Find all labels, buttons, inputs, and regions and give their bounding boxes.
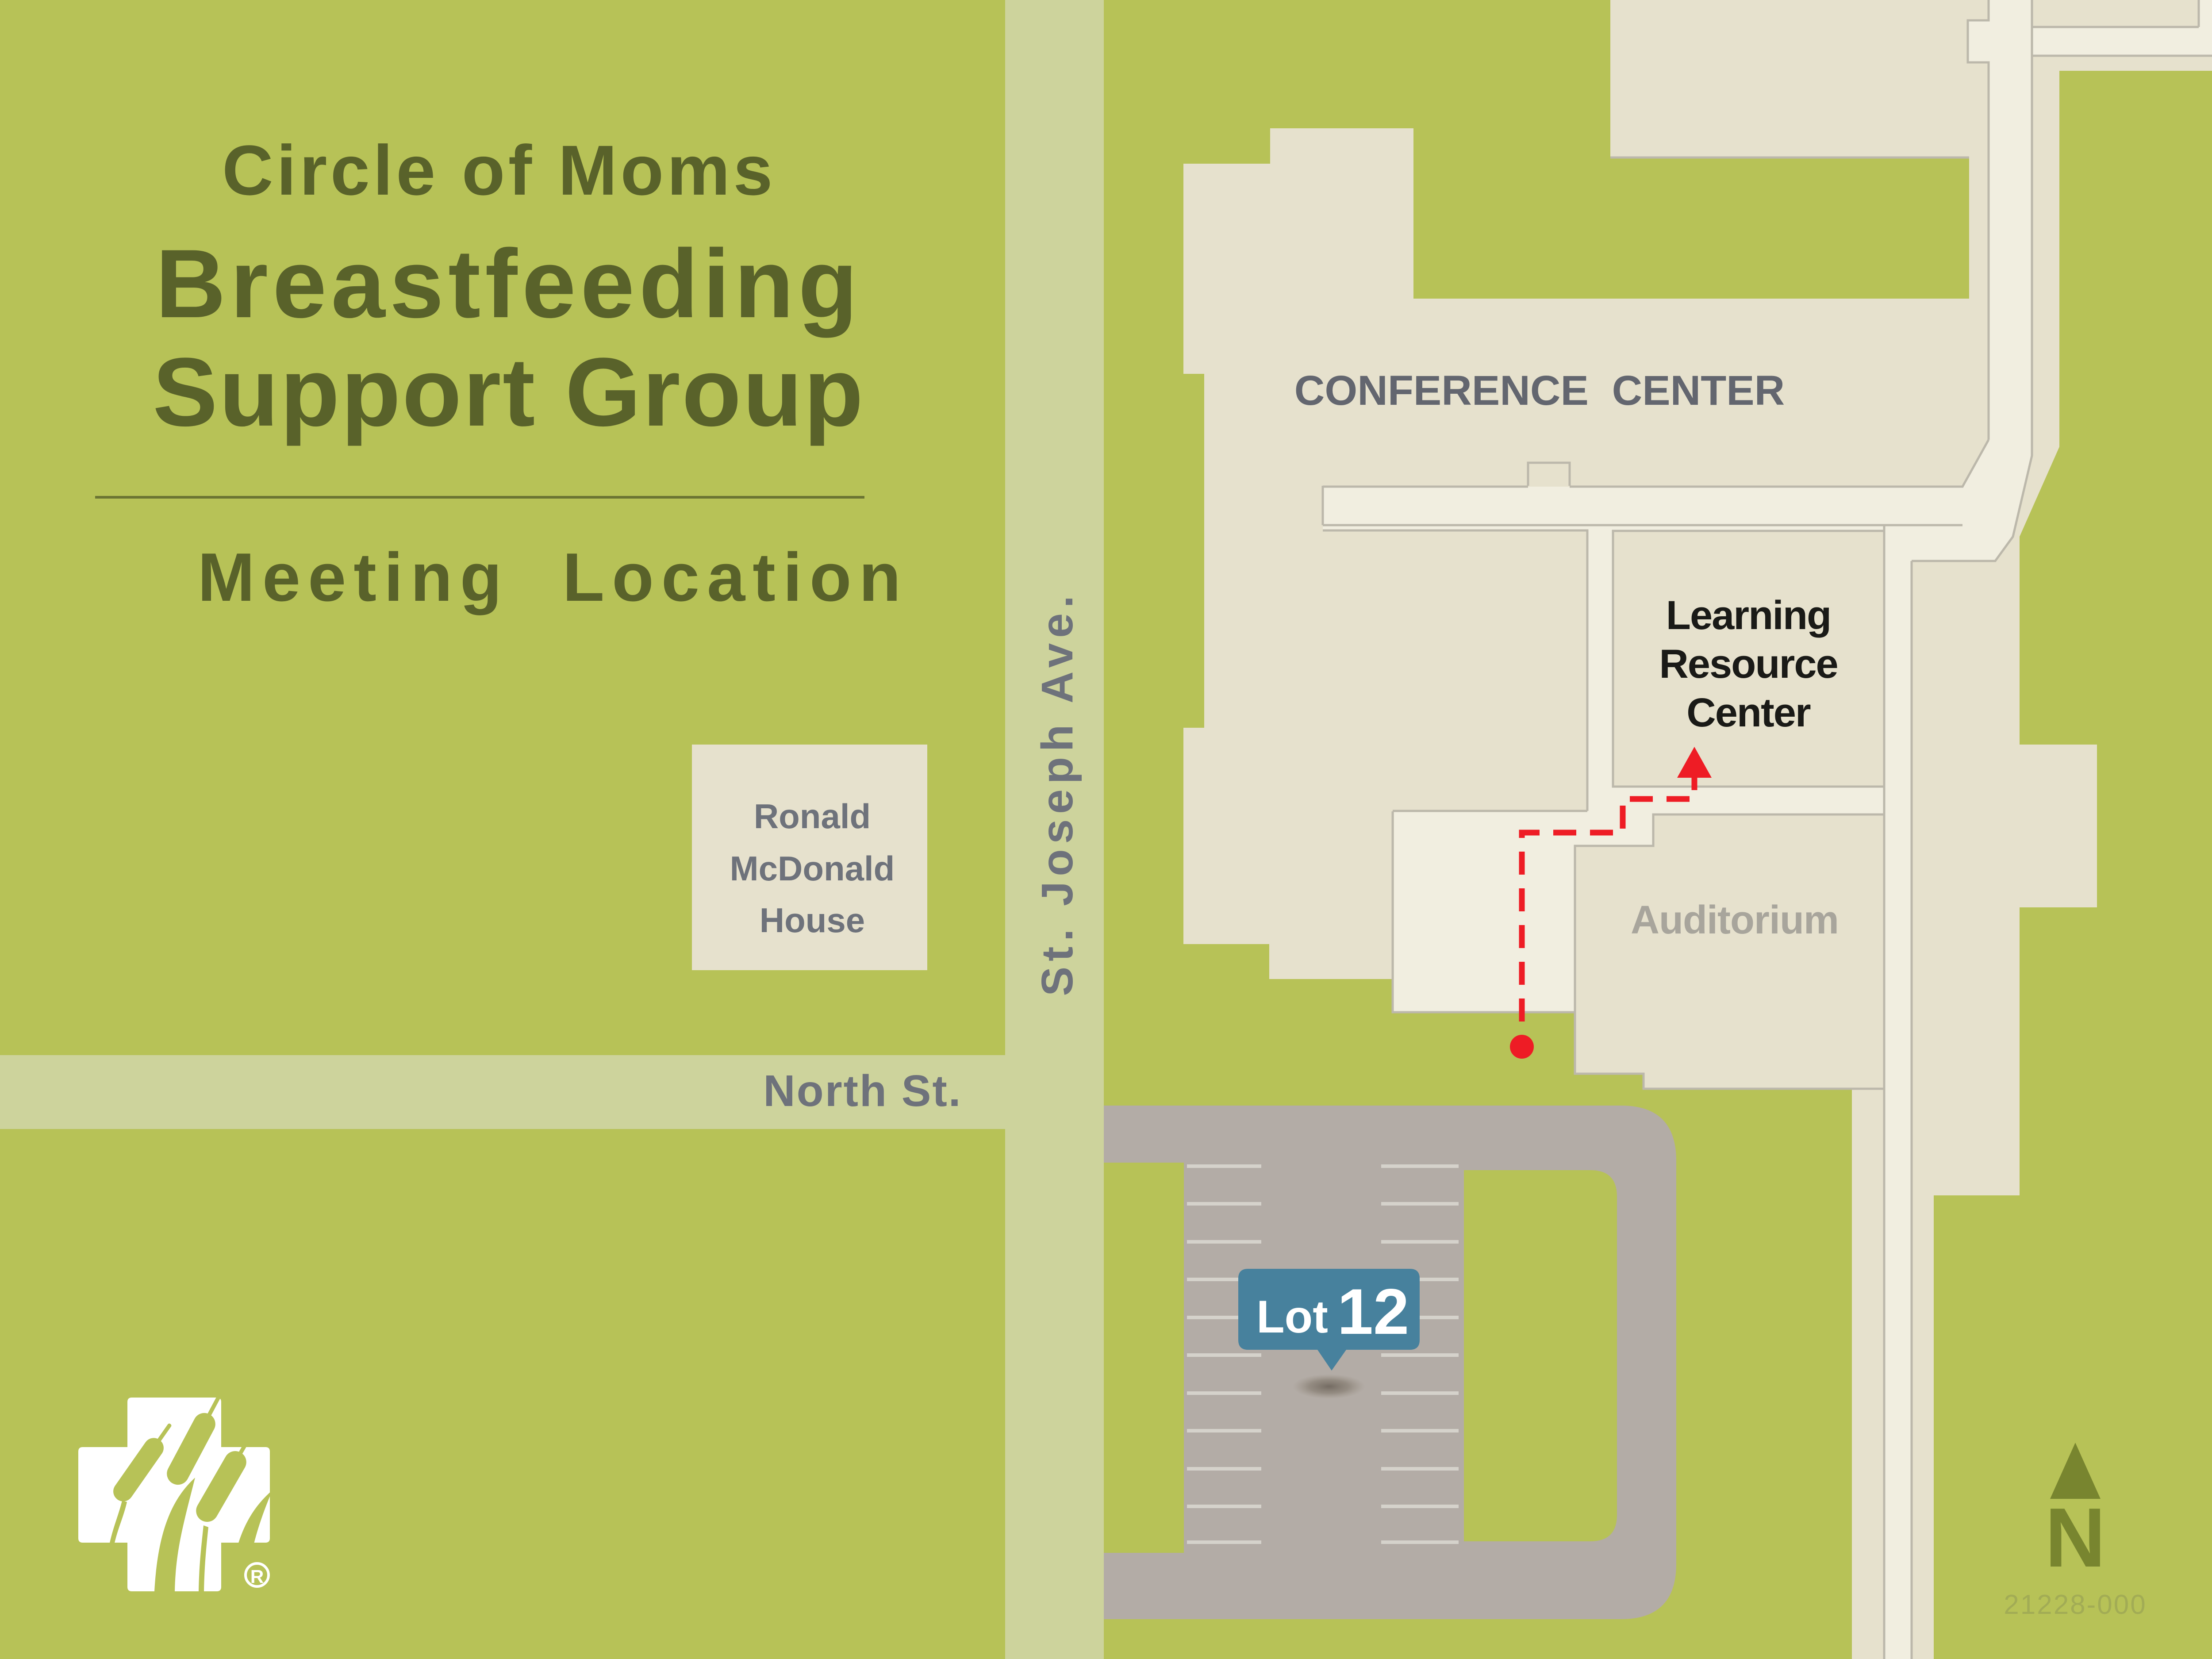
svg-text:St. Joseph Ave.: St. Joseph Ave. [1033,590,1082,996]
svg-text:N: N [2045,1491,2105,1585]
svg-text:Learning: Learning [1666,593,1831,638]
svg-text:Auditorium: Auditorium [1631,898,1839,942]
svg-text:Resource: Resource [1659,641,1837,687]
svg-text:McDonald: McDonald [730,849,895,888]
svg-text:House: House [760,901,865,940]
svg-text:Meeting Location: Meeting Location [198,539,909,615]
svg-text:North St.: North St. [763,1066,962,1116]
svg-text:Ronald: Ronald [754,797,871,836]
svg-text:Breastfeeding: Breastfeeding [155,229,862,338]
svg-text:R: R [250,1566,264,1587]
svg-text:Support Group: Support Group [153,338,865,446]
svg-text:Circle of Moms: Circle of Moms [222,131,776,210]
svg-text:12: 12 [1337,1275,1409,1348]
svg-text:CONFERENCE CENTER: CONFERENCE CENTER [1294,367,1785,414]
svg-text:21228-000: 21228-000 [2004,1590,2147,1620]
svg-text:Center: Center [1686,690,1811,735]
svg-text:Lot: Lot [1256,1291,1328,1343]
